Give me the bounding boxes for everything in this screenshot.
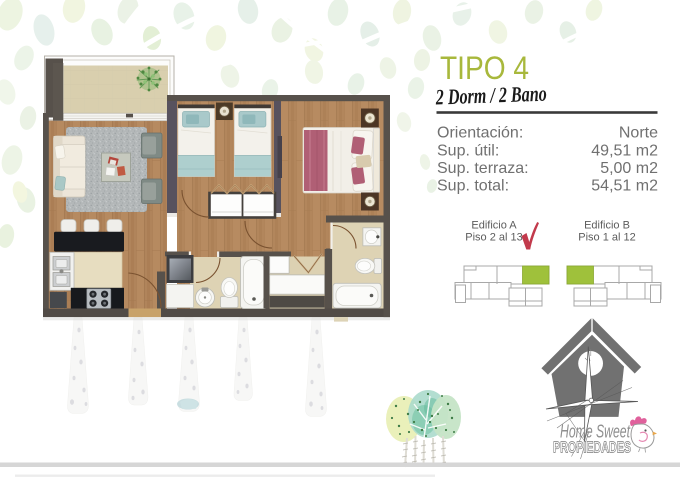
svg-text:Orientación:: Orientación: <box>437 125 523 142</box>
svg-text:PROPIEDADES: PROPIEDADES <box>553 440 631 457</box>
svg-text:Sup. útil:: Sup. útil: <box>437 142 499 159</box>
svg-text:Home Sweet: Home Sweet <box>560 422 631 442</box>
svg-text:Sup. terraza:: Sup. terraza: <box>437 160 529 177</box>
svg-text:54,51 m2: 54,51 m2 <box>591 178 658 195</box>
svg-text:TIPO 4: TIPO 4 <box>440 50 529 86</box>
svg-text:Piso 1 al 12: Piso 1 al 12 <box>578 232 635 244</box>
svg-text:Piso 2 al 13: Piso 2 al 13 <box>465 232 522 244</box>
svg-text:Sup. total:: Sup. total: <box>437 178 509 195</box>
svg-text:Edificio B: Edificio B <box>584 220 630 232</box>
svg-text:Norte: Norte <box>619 125 658 142</box>
svg-text:Edificio A: Edificio A <box>471 220 517 232</box>
svg-text:49,51 m2: 49,51 m2 <box>591 142 658 159</box>
svg-text:2 Dorm / 2 Bano: 2 Dorm / 2 Bano <box>435 81 548 110</box>
svg-text:5,00 m2: 5,00 m2 <box>600 160 658 177</box>
